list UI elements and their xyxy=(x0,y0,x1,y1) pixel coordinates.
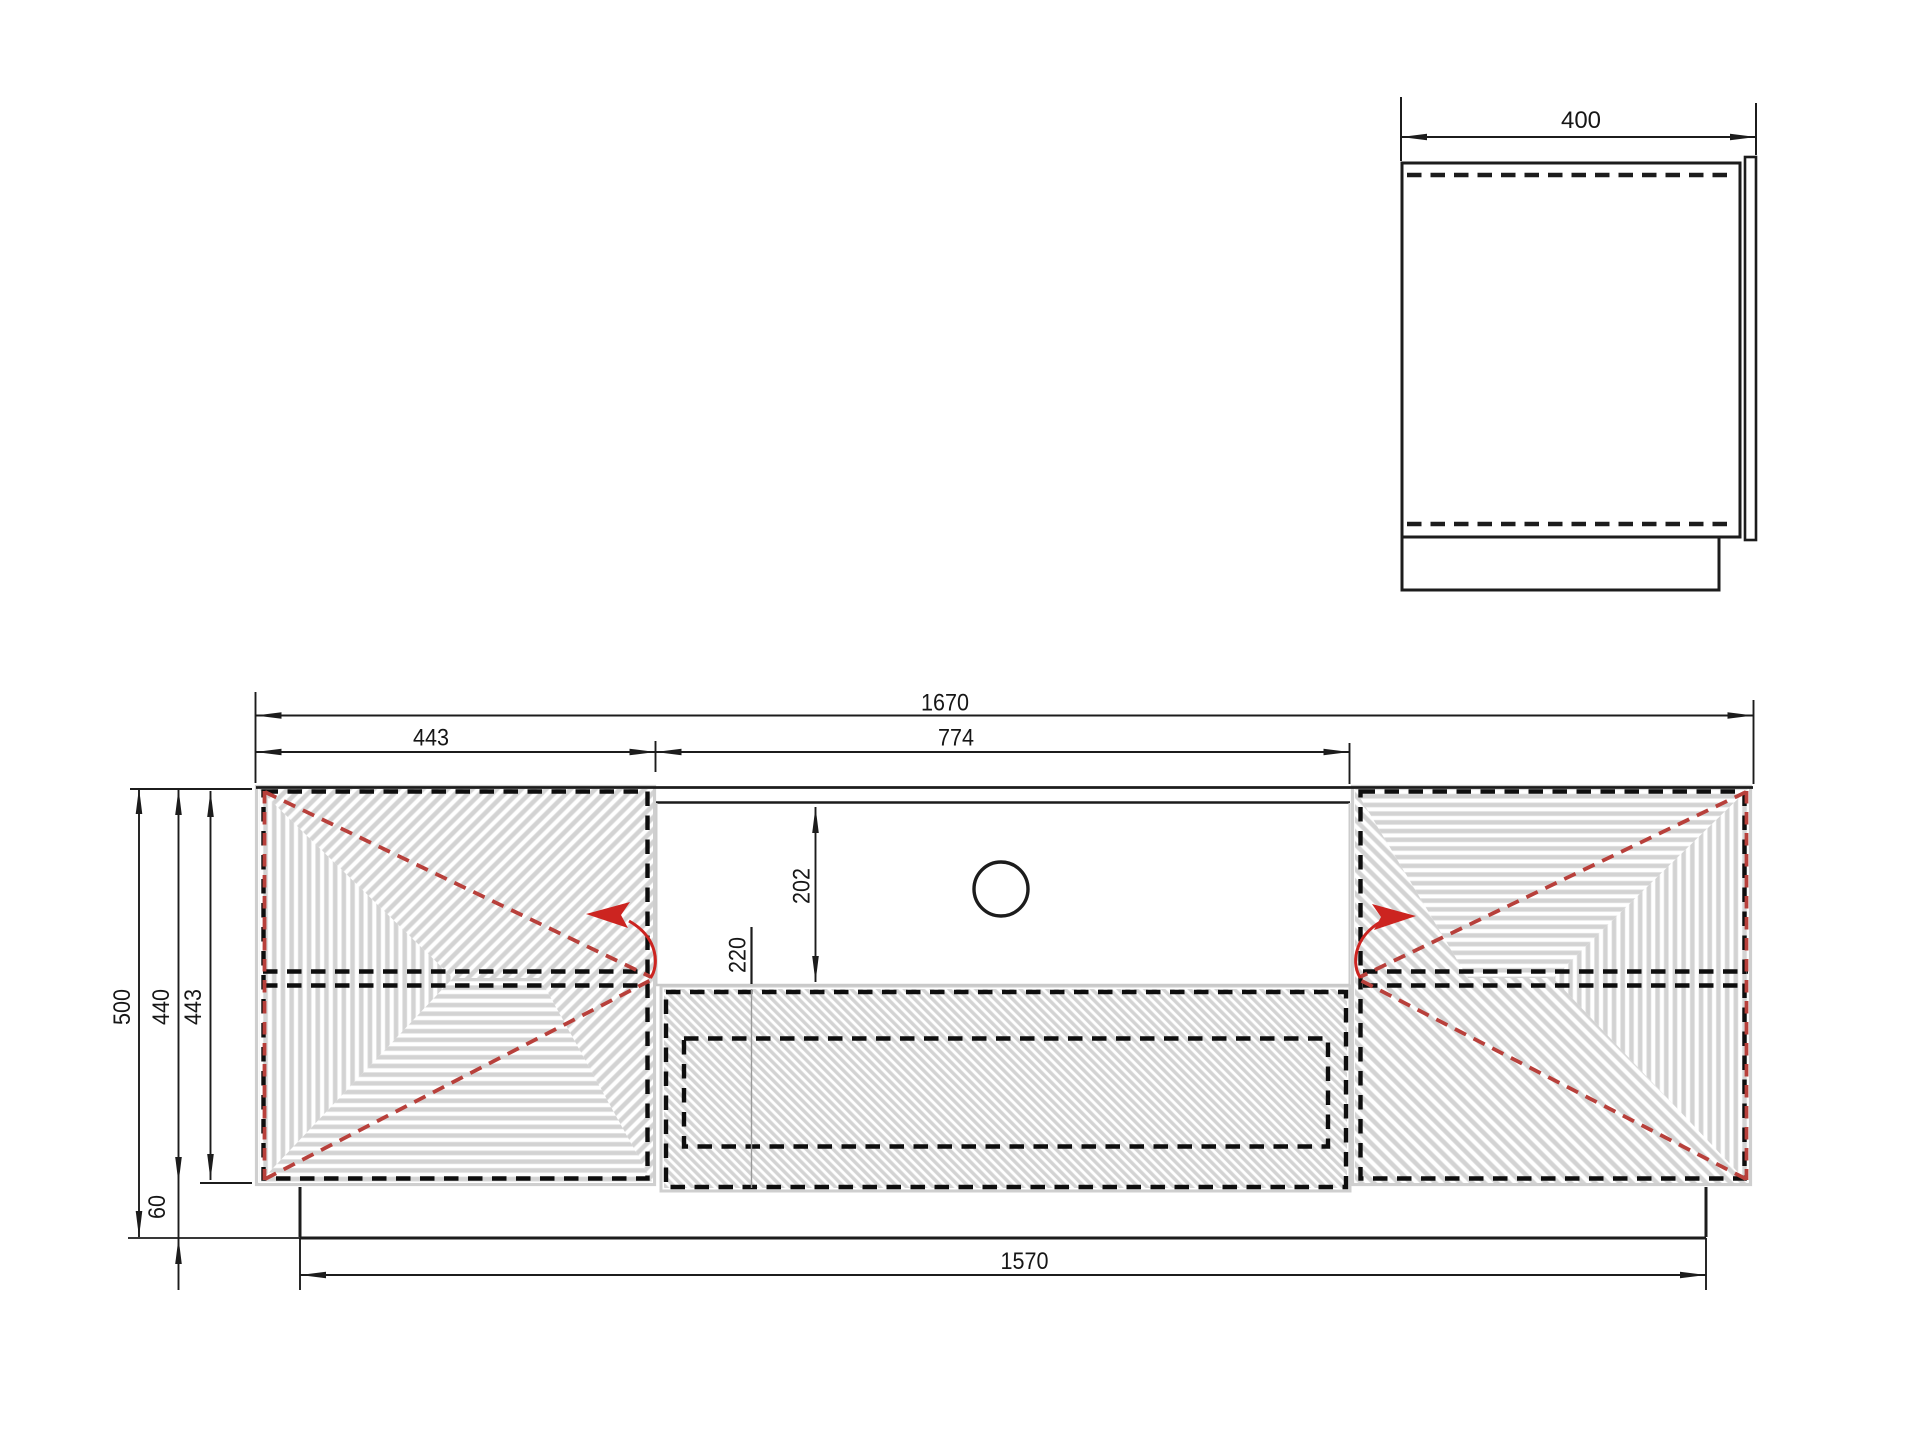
svg-text:774: 774 xyxy=(938,725,974,752)
svg-text:440: 440 xyxy=(148,989,175,1025)
svg-text:443: 443 xyxy=(413,725,449,752)
svg-text:202: 202 xyxy=(789,868,816,904)
svg-text:1670: 1670 xyxy=(921,690,969,717)
svg-text:443: 443 xyxy=(180,989,207,1025)
svg-text:220: 220 xyxy=(725,937,752,973)
svg-text:400: 400 xyxy=(1561,107,1601,134)
svg-text:500: 500 xyxy=(109,989,136,1025)
svg-text:60: 60 xyxy=(144,1195,171,1219)
svg-text:1570: 1570 xyxy=(1001,1248,1049,1275)
